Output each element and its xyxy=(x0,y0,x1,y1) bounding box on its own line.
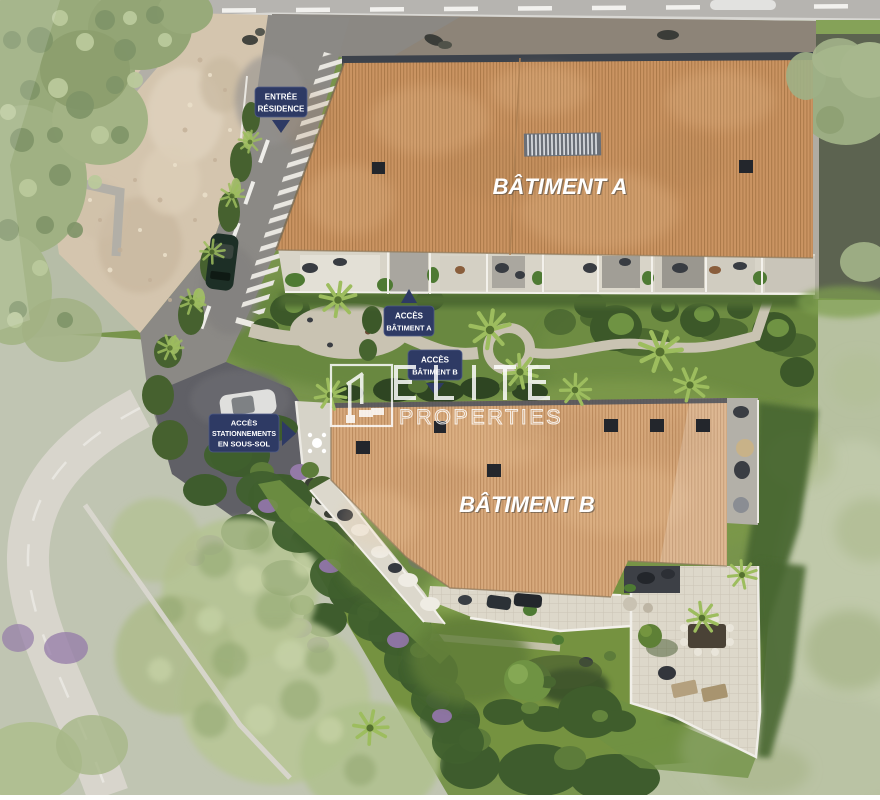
svg-text:ACCÈS: ACCÈS xyxy=(231,419,258,428)
svg-text:PROPERTIES: PROPERTIES xyxy=(399,405,563,429)
svg-text:ACCÈS: ACCÈS xyxy=(395,312,424,321)
svg-text:BÂTIMENT A: BÂTIMENT A xyxy=(386,324,432,333)
svg-text:EN SOUS-SOL: EN SOUS-SOL xyxy=(218,440,271,449)
svg-text:ENTRÉE: ENTRÉE xyxy=(265,93,298,102)
svg-text:STATIONNEMENTS: STATIONNEMENTS xyxy=(212,429,276,438)
svg-text:ACCÈS: ACCÈS xyxy=(421,356,450,365)
svg-text:BÂTIMENT A: BÂTIMENT A xyxy=(493,174,628,199)
svg-text:BÂTIMENT B: BÂTIMENT B xyxy=(459,492,595,517)
svg-text:RÉSIDENCE: RÉSIDENCE xyxy=(258,105,305,114)
